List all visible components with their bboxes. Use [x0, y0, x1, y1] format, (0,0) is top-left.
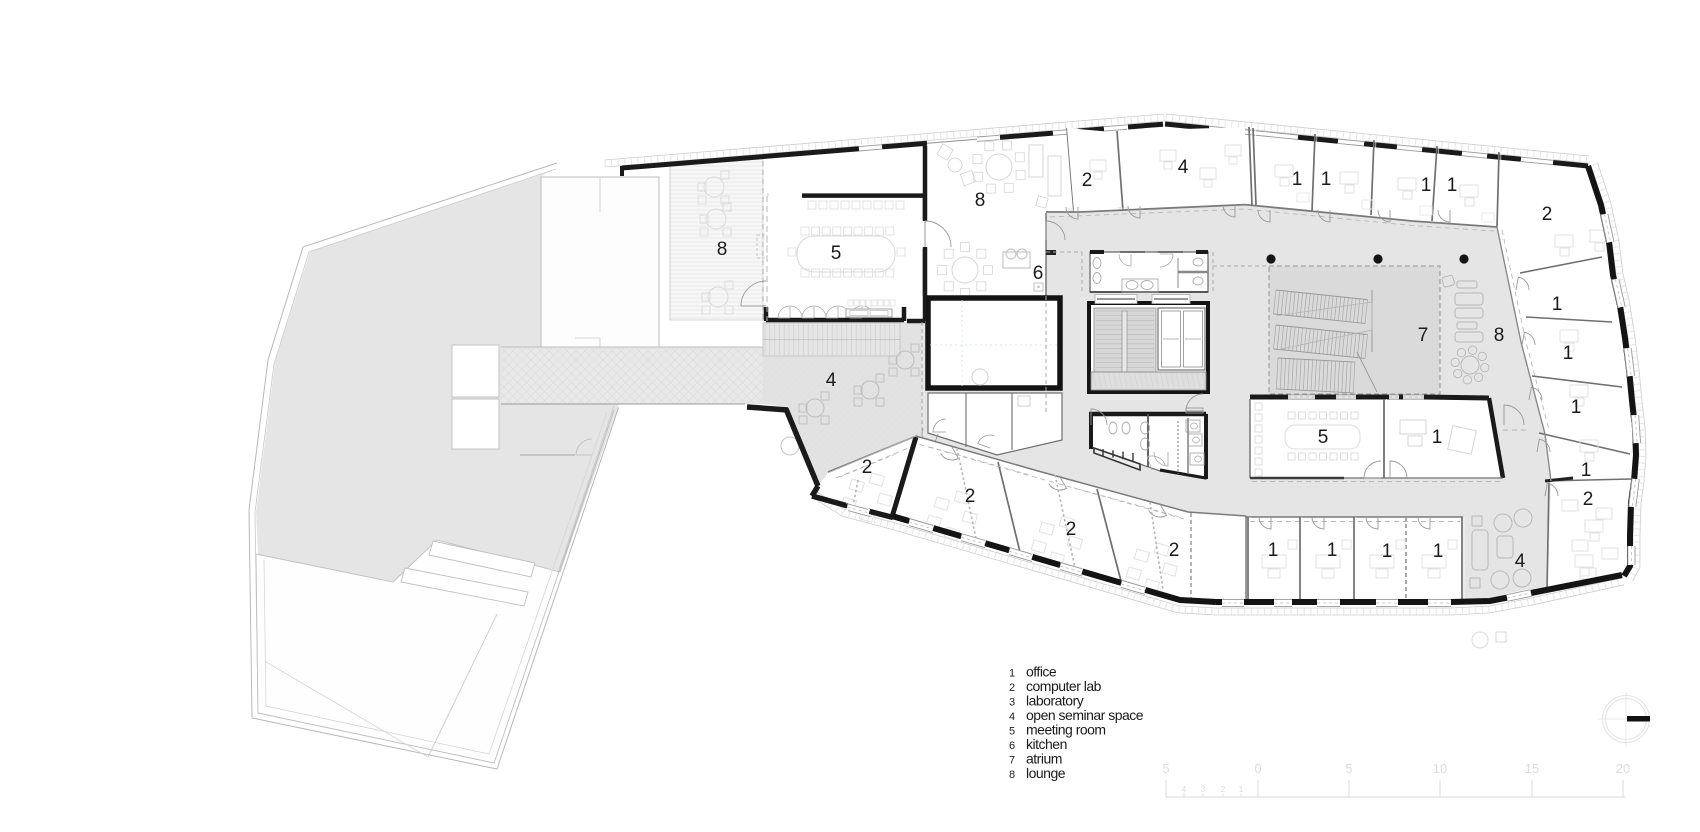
svg-text:2: 2 [862, 457, 873, 478]
svg-text:1: 1 [1552, 294, 1563, 315]
svg-text:2: 2 [1169, 540, 1180, 561]
svg-text:4: 4 [1009, 711, 1015, 723]
svg-text:1: 1 [1009, 668, 1015, 680]
svg-text:6: 6 [1033, 263, 1044, 284]
svg-text:1: 1 [1268, 540, 1279, 561]
svg-text:1: 1 [1321, 169, 1332, 190]
svg-text:2: 2 [1583, 489, 1594, 510]
svg-text:4: 4 [1178, 157, 1189, 178]
svg-text:5: 5 [1345, 761, 1352, 776]
svg-text:7: 7 [1009, 755, 1015, 767]
svg-text:1: 1 [1432, 427, 1443, 448]
svg-text:1: 1 [1292, 169, 1303, 190]
svg-text:1: 1 [1581, 460, 1592, 481]
svg-text:2: 2 [1542, 204, 1553, 225]
svg-text:6: 6 [1009, 740, 1015, 752]
svg-text:2: 2 [1009, 682, 1015, 694]
svg-text:1: 1 [1447, 175, 1458, 196]
svg-text:lounge: lounge [1026, 765, 1066, 781]
svg-text:8: 8 [1494, 325, 1505, 346]
svg-text:1: 1 [1382, 541, 1393, 562]
svg-text:3: 3 [1009, 697, 1015, 709]
svg-text:1: 1 [1563, 343, 1574, 364]
svg-text:0: 0 [1254, 761, 1261, 776]
svg-text:2: 2 [965, 486, 976, 507]
svg-text:1: 1 [1239, 785, 1244, 794]
svg-text:3: 3 [1201, 785, 1206, 794]
svg-text:10: 10 [1433, 761, 1447, 776]
svg-text:4: 4 [1515, 551, 1526, 572]
svg-text:20: 20 [1616, 761, 1630, 776]
svg-text:2: 2 [1221, 785, 1226, 794]
svg-text:1: 1 [1327, 540, 1338, 561]
svg-text:5: 5 [1162, 761, 1169, 776]
svg-text:1: 1 [1433, 541, 1444, 562]
svg-text:4: 4 [826, 370, 837, 391]
svg-text:5: 5 [831, 243, 842, 264]
svg-text:8: 8 [1009, 769, 1015, 781]
svg-text:2: 2 [1082, 170, 1093, 191]
svg-text:8: 8 [975, 190, 986, 211]
svg-text:5: 5 [1318, 427, 1329, 448]
svg-text:7: 7 [1418, 325, 1429, 346]
svg-text:8: 8 [717, 239, 728, 260]
svg-text:1: 1 [1421, 175, 1432, 196]
svg-text:5: 5 [1009, 726, 1015, 738]
svg-text:15: 15 [1525, 761, 1539, 776]
svg-text:4: 4 [1182, 785, 1187, 794]
svg-text:2: 2 [1066, 519, 1077, 540]
svg-text:1: 1 [1571, 397, 1582, 418]
